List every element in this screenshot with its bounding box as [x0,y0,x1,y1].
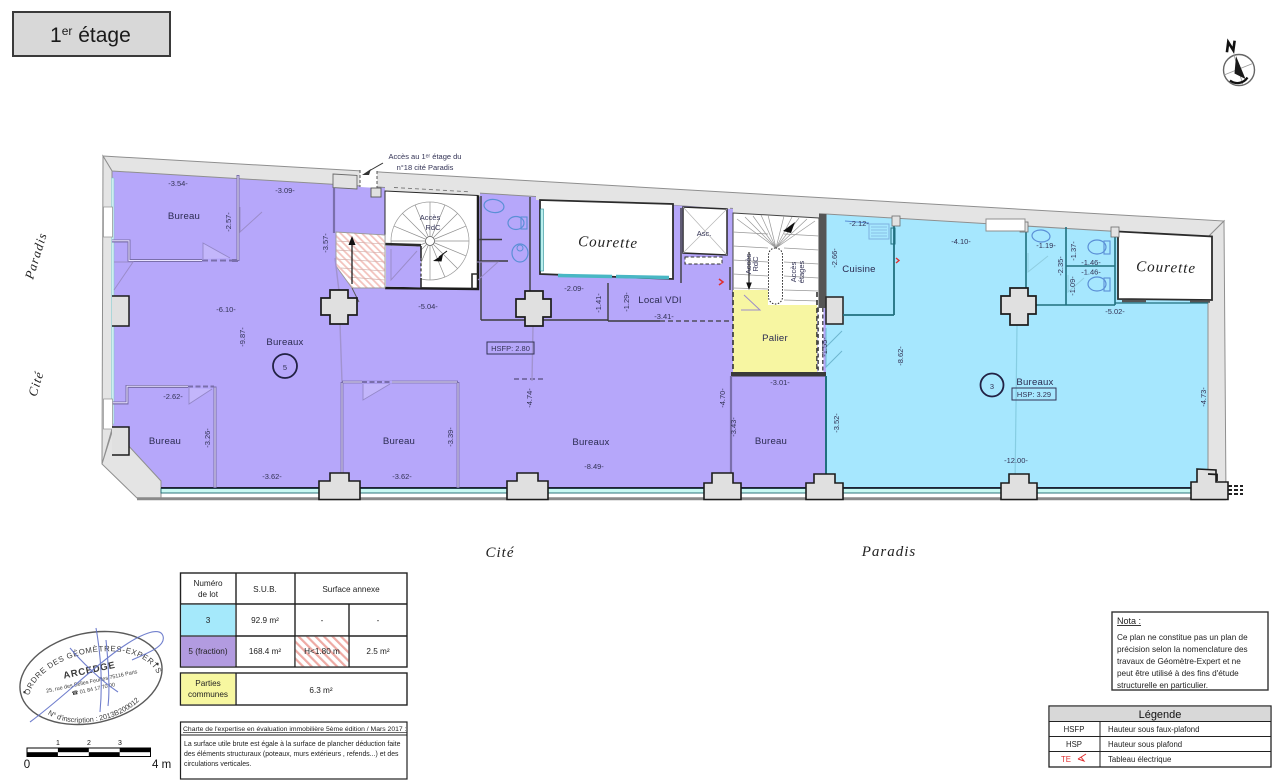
svg-text:-3.57-: -3.57- [321,233,330,253]
svg-text:HSFP: HSFP [1064,725,1085,734]
svg-text:-3.01-: -3.01- [770,378,790,387]
svg-text:Accès au 1ᵉʳ étage du: Accès au 1ᵉʳ étage du [389,152,462,161]
svg-text:Paradis: Paradis [21,230,50,281]
svg-text:5 (fraction): 5 (fraction) [188,647,227,656]
svg-text:Charte de l'expertise en évalu: Charte de l'expertise en évaluation immo… [183,726,407,733]
svg-text:Légende: Légende [1139,709,1182,721]
svg-text:précision selon la nomenclatur: précision selon la nomenclature des [1117,645,1248,654]
svg-text:Palier: Palier [762,333,788,344]
svg-text:-: - [377,616,380,625]
svg-text:-5.04-: -5.04- [418,302,438,311]
svg-text:N° d'inscription : 2013B200012: N° d'inscription : 2013B200012 [45,690,143,734]
svg-text:Cuisine: Cuisine [842,264,875,275]
svg-text:-1.19-: -1.19- [1036,241,1056,250]
svg-text:6.3 m²: 6.3 m² [309,686,332,695]
svg-text:-1.46-: -1.46- [1081,268,1101,277]
svg-text:-2.35-: -2.35- [1056,256,1065,276]
svg-text:RdC: RdC [425,223,441,232]
svg-text:-2.09-: -2.09- [564,284,584,293]
svg-text:Bureaux: Bureaux [1016,377,1053,388]
svg-text:2.5 m²: 2.5 m² [366,647,389,656]
svg-text:Bureau: Bureau [168,211,200,222]
svg-text:Nota :: Nota : [1117,616,1141,626]
svg-text:Hauteur sous faux-plafond: Hauteur sous faux-plafond [1108,725,1199,734]
svg-text:n°18 cité Paradis: n°18 cité Paradis [397,163,454,172]
svg-text:-8.62-: -8.62- [896,346,905,366]
svg-text:-8.49-: -8.49- [584,462,604,471]
svg-text:TE: TE [1061,755,1071,764]
svg-text:Local VDI: Local VDI [638,295,681,306]
svg-text:-1.41-: -1.41- [594,293,603,313]
svg-text:Cité: Cité [25,369,47,398]
svg-text:peut être utilisé à des fins d: peut être utilisé à des fins d'étude [1117,669,1239,678]
svg-text:Bureau: Bureau [755,436,787,447]
svg-text:Hauteur sous plafond: Hauteur sous plafond [1108,740,1182,749]
svg-text:3: 3 [118,740,122,747]
svg-text:-4.74-: -4.74- [525,388,534,408]
svg-text:-: - [321,616,324,625]
svg-text:-3.39-: -3.39- [446,427,455,447]
svg-text:HSFP: 2.80: HSFP: 2.80 [491,344,530,353]
svg-text:-1.29-: -1.29- [622,292,631,312]
svg-text:-1.55-: -1.55- [820,337,829,357]
svg-text:Bureaux: Bureaux [572,437,609,448]
svg-text:-3.26-: -3.26- [203,428,212,448]
svg-text:-5.02-: -5.02- [1105,307,1125,316]
svg-text:Asc.: Asc. [697,229,712,238]
svg-text:1: 1 [56,740,60,747]
svg-text:travaux de Géomètre-Expert et: travaux de Géomètre-Expert et ne [1117,657,1241,666]
svg-text:Courette: Courette [1136,259,1196,277]
svg-text:3: 3 [206,616,211,625]
svg-text:RdC: RdC [751,256,760,272]
svg-text:HSP: HSP [1066,740,1082,749]
svg-text:0: 0 [24,759,30,771]
svg-text:-3.54-: -3.54- [168,179,188,188]
svg-text:Bureau: Bureau [149,436,181,447]
svg-text:Surface annexe: Surface annexe [322,585,380,594]
svg-text:-2.57-: -2.57- [224,212,233,232]
svg-text:Courette: Courette [578,234,638,252]
svg-text:-3.43-: -3.43- [729,417,738,437]
svg-text:168.4 m²: 168.4 m² [249,647,282,656]
svg-text:des éléments structuraux (pote: des éléments structuraux (poteaux, murs … [184,751,399,758]
svg-text:étages: étages [797,260,806,283]
svg-text:92.9 m²: 92.9 m² [251,616,279,625]
svg-text:-4.73-: -4.73- [1199,387,1208,407]
svg-text:-6.10-: -6.10- [216,305,236,314]
svg-text:Accès: Accès [420,213,441,222]
svg-text:Numéro: Numéro [193,579,223,588]
svg-text:3: 3 [990,382,994,391]
svg-text:Paradis: Paradis [861,544,917,560]
svg-text:5: 5 [283,363,287,372]
svg-text:Bureaux: Bureaux [266,337,303,348]
svg-text:de lot: de lot [198,590,219,599]
svg-text:Ce plan ne constitue pas un pl: Ce plan ne constitue pas un plan de [1117,633,1248,642]
svg-text:HSP: 3.29: HSP: 3.29 [1017,390,1051,399]
svg-text:communes: communes [188,690,228,699]
svg-text:-3.62-: -3.62- [392,472,412,481]
svg-text:Bureau: Bureau [383,436,415,447]
svg-text:-2.66-: -2.66- [830,248,839,268]
svg-text:-1.46-: -1.46- [1081,258,1101,267]
svg-text:-4.70-: -4.70- [718,388,727,408]
svg-text:-4.10-: -4.10- [951,237,971,246]
svg-text:structurelle en particulier.: structurelle en particulier. [1117,681,1208,690]
svg-text:-3.09-: -3.09- [275,186,295,195]
svg-text:-3.52-: -3.52- [832,413,841,433]
svg-text:-12.00-: -12.00- [1004,456,1028,465]
svg-text:-1.37-: -1.37- [1069,241,1078,261]
svg-text:H<1.80 m: H<1.80 m [304,647,340,656]
svg-text:Parties: Parties [195,679,220,688]
svg-text:-3.41-: -3.41- [654,312,674,321]
svg-text:-2.12-: -2.12- [849,219,869,228]
svg-text:Tableau électrique: Tableau électrique [1108,755,1171,764]
svg-text:La surface utile brute est éga: La surface utile brute est égale à la su… [184,741,401,748]
svg-text:4 m: 4 m [152,759,171,771]
svg-text:S.U.B.: S.U.B. [253,585,277,594]
svg-text:Cité: Cité [486,545,515,561]
svg-text:-3.62-: -3.62- [262,472,282,481]
svg-text:circulations verticales.: circulations verticales. [184,761,251,768]
svg-text:2: 2 [87,740,91,747]
svg-text:-9.87-: -9.87- [238,327,247,347]
svg-text:-1.09-: -1.09- [1068,276,1077,296]
svg-text:-2.62-: -2.62- [163,392,183,401]
